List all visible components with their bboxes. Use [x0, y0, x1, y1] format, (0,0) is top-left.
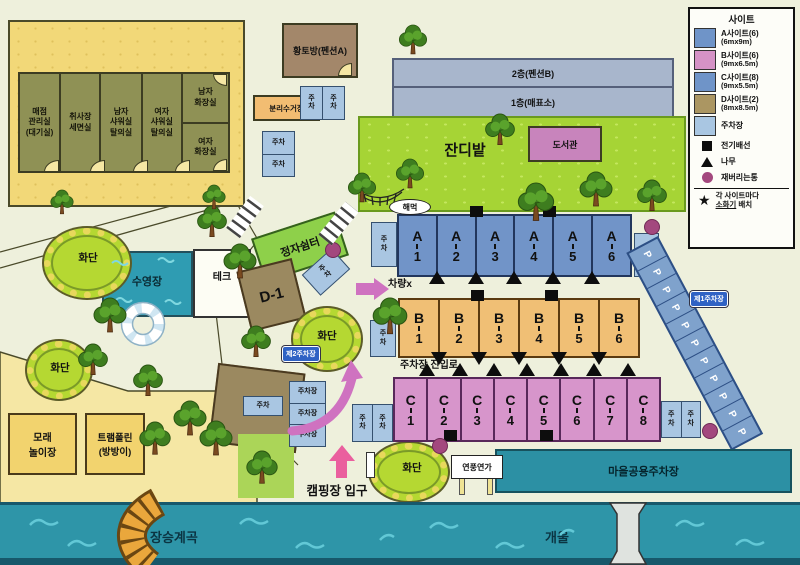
triangle-glyph — [701, 157, 713, 167]
parking-lot-cell: 주차장 — [290, 425, 325, 446]
room-men-shower: 남자 샤워실 탈의실 — [101, 74, 142, 171]
site-C-6: C6 — [561, 379, 594, 440]
site-number: 5 — [575, 332, 582, 345]
circle-glyph — [702, 172, 713, 183]
site-number: 7 — [607, 414, 614, 427]
legend-site-row: A사이트(6)(6mx9m) — [694, 28, 789, 48]
site-letter: B — [454, 311, 464, 325]
site-row-a: A1A2A3A4A5A6 — [397, 214, 632, 277]
river-bank — [0, 558, 800, 565]
site-number: 8 — [640, 414, 647, 427]
pension-b-building: 2층(펜션B) 1층(매표소) — [392, 58, 674, 120]
site-A-5: A5 — [554, 216, 593, 275]
power-marker-icon — [444, 430, 457, 441]
tree-marker-icon — [486, 363, 502, 376]
site-letter: C — [572, 393, 582, 407]
site-letter: A — [490, 229, 500, 243]
lawn-area — [358, 116, 686, 212]
power-marker-icon — [540, 430, 553, 441]
site-dash — [642, 408, 644, 413]
ash-bin-icon — [432, 438, 448, 454]
legend-note-text: 각 사이트마다 소화기 배치 — [716, 191, 759, 210]
site-dash — [543, 408, 545, 413]
tree-marker-icon — [506, 271, 522, 284]
site-number: 1 — [414, 250, 421, 263]
ash-bin-icon — [325, 242, 341, 258]
square-icon — [700, 141, 714, 151]
site-number: 3 — [495, 332, 502, 345]
parking-cell-pair: 주차 주차 — [262, 131, 295, 177]
legend-site-row: D사이트(2)(8mx8.5m) — [694, 94, 789, 114]
parking-cell-label: 주 차 — [323, 87, 344, 119]
legend-symbol-row: 나무 — [700, 154, 789, 169]
site-letter: C — [439, 393, 449, 407]
valley-label: 장승계곡 — [150, 527, 198, 546]
parking-cell-label: 주 차 — [682, 402, 701, 437]
pension-b-2f-label: 2층(펜션B) — [394, 60, 672, 88]
ash-bin-icon — [702, 423, 718, 439]
site-letter: C — [472, 393, 482, 407]
circle-icon — [700, 172, 714, 183]
parking-cell-label: 주 차 — [373, 405, 392, 441]
site-letter: C — [539, 393, 549, 407]
sand-playground: 모래 놀이장 — [8, 413, 77, 475]
site-row-c: C1C2C3C4C5C6C7C8 — [393, 377, 661, 442]
site-A-3: A3 — [477, 216, 516, 275]
site-letter: A — [529, 229, 539, 243]
site-number: 1 — [407, 414, 414, 427]
parking-cell-label: 주차 — [244, 397, 282, 415]
parking-tag: 제2주차장 — [282, 346, 320, 362]
legend-symbol-label: 재버리는통 — [721, 173, 758, 182]
site-letter: B — [574, 311, 584, 325]
site-number: 3 — [474, 414, 481, 427]
site-number: 4 — [507, 414, 514, 427]
site-C-4: C4 — [495, 379, 528, 440]
site-B-4: B4 — [520, 300, 560, 356]
campground-map: 매점 관리실 (대기실) 취사장 세면실 남자 샤워실 탈의실 여자 샤워실 탈… — [0, 0, 800, 565]
site-A-2: A2 — [438, 216, 477, 275]
site-letter: A — [451, 229, 461, 243]
room-women-shower: 여자 샤워실 탈의실 — [143, 74, 183, 171]
lawn-label: 잔디밭 — [420, 142, 510, 160]
tree-marker-icon — [584, 271, 600, 284]
sign-leg — [459, 478, 465, 495]
tree-marker-icon — [511, 352, 527, 365]
site-letter: C — [605, 393, 615, 407]
parking-cell-label: 주 차 — [372, 223, 396, 266]
site-letter: A — [606, 229, 616, 243]
site-number: 5 — [569, 250, 576, 263]
site-A-1: A1 — [399, 216, 438, 275]
site-dash — [476, 408, 478, 413]
site-number: 2 — [453, 250, 460, 263]
village-public-parking: 마을공용주차장 — [495, 449, 792, 493]
site-letter: A — [568, 229, 578, 243]
legend-site-row: 주차장 — [694, 116, 789, 136]
site-B-2: B2 — [440, 300, 480, 356]
site-C-7: C7 — [595, 379, 628, 440]
parking-cell-label: 주 차 — [662, 402, 682, 437]
site-color-swatch — [694, 116, 716, 136]
flowerbed-label: 화단 — [297, 330, 357, 343]
library: 도서관 — [528, 126, 602, 162]
parking-lot-cell: 주차장 — [290, 382, 325, 404]
pension-b-1f-label: 1층(매표소) — [394, 88, 672, 116]
site-dash — [509, 408, 511, 413]
site-B-5: B5 — [560, 300, 600, 356]
site-dash — [572, 244, 574, 249]
legend-site-size: (8mx8.5m) — [721, 104, 759, 113]
site-letter: C — [505, 393, 515, 407]
site-number: 4 — [530, 250, 537, 263]
site-letter: C — [638, 393, 648, 407]
legend-site-label: B사이트(6)(9mx6.5m) — [721, 51, 759, 69]
site-row-b: B1B2B3B4B5B6 — [398, 298, 640, 358]
room-kitchen: 취사장 세면실 — [61, 74, 101, 171]
site-color-swatch — [694, 28, 716, 48]
parking-cell: 주 차 — [371, 222, 397, 267]
star-icon: ★ — [698, 193, 711, 207]
flowerbed-label: 화단 — [30, 362, 90, 375]
legend-symbol-list: 전기배선나무재버리는통 — [694, 138, 789, 185]
legend-site-label: C사이트(8)(9mx5.5m) — [721, 73, 759, 91]
parking-cell: 주차 — [243, 396, 283, 416]
site-dash — [494, 244, 496, 249]
legend-panel: 사이트 A사이트(6)(6mx9m)B사이트(6)(9mx6.5m)C사이트(8… — [688, 7, 795, 249]
parking-cell-label: 주차 — [263, 132, 294, 155]
site-letter: B — [414, 311, 424, 325]
room-store: 매점 관리실 (대기실) — [20, 74, 61, 171]
legend-site-name: 주차장 — [721, 121, 743, 130]
site-B-1: B1 — [400, 300, 440, 356]
site-dash — [455, 244, 457, 249]
site-letter: B — [614, 311, 624, 325]
site-number: 6 — [608, 250, 615, 263]
legend-site-row: B사이트(6)(9mx6.5m) — [694, 50, 789, 70]
entrance-arrow-icon — [329, 445, 355, 478]
signpost — [366, 452, 375, 478]
power-marker-icon — [545, 290, 558, 301]
site-A-6: A6 — [593, 216, 630, 275]
site-color-swatch — [694, 94, 716, 114]
note-underline: 소화기 — [716, 200, 737, 209]
ash-bin-icon — [644, 219, 660, 235]
deck-label: 테크 — [197, 272, 247, 284]
site-letter: C — [406, 393, 416, 407]
sign-leg — [487, 478, 493, 495]
tree-marker-icon — [545, 271, 561, 284]
legend-site-size: (6mx9m) — [721, 38, 759, 47]
parking-cell-pair: 주 차 주 차 — [661, 401, 701, 438]
site-dash — [533, 244, 535, 249]
parking-cell-label: 주 차 — [301, 87, 323, 119]
power-marker-icon — [470, 206, 483, 217]
site-C-1: C1 — [395, 379, 428, 440]
river: 장승계곡 개울 — [0, 502, 800, 565]
site-letter: A — [412, 229, 422, 243]
site-number: 2 — [455, 332, 462, 345]
tree-marker-icon — [551, 352, 567, 365]
site-letter: B — [494, 311, 504, 325]
parking-cell-label: 주 차 — [371, 321, 395, 356]
site-letter: B — [534, 311, 544, 325]
green-patch — [238, 434, 294, 498]
legend-site-size: (9mx6.5m) — [721, 60, 759, 69]
site-number: 2 — [440, 414, 447, 427]
legend-symbol-label: 전기배선 — [721, 141, 750, 150]
legend-site-row: C사이트(8)(9mx5.5m) — [694, 72, 789, 92]
site-A-4: A4 — [515, 216, 554, 275]
legend-site-label: D사이트(2)(8mx8.5m) — [721, 95, 759, 113]
site-dash — [609, 408, 611, 413]
trampoline: 트램폴린 (방방이) — [85, 413, 145, 475]
legend-symbol-row: 재버리는통 — [700, 170, 789, 185]
triangle-icon — [700, 157, 714, 167]
tree-icon — [198, 206, 227, 237]
legend-note: ★ 각 사이트마다 소화기 배치 — [694, 191, 789, 210]
entry-road-label: 주차장 진입로 — [400, 360, 480, 372]
site-number: 5 — [540, 414, 547, 427]
site-C-3: C3 — [462, 379, 495, 440]
site-C-8: C8 — [628, 379, 659, 440]
pool-label: 수영장 — [112, 276, 182, 289]
site-number: 6 — [573, 414, 580, 427]
service-building: 매점 관리실 (대기실) 취사장 세면실 남자 샤워실 탈의실 여자 샤워실 탈… — [18, 72, 230, 173]
site-dash — [611, 244, 613, 249]
site-number: 4 — [535, 332, 542, 345]
power-marker-icon — [543, 206, 556, 217]
power-marker-icon — [471, 290, 484, 301]
parking-lot-cell: 주차장 — [290, 404, 325, 426]
site-dash — [416, 244, 418, 249]
tree-icon — [399, 25, 426, 54]
tree-marker-icon — [591, 352, 607, 365]
pension-sign: 연풍연가 — [451, 455, 503, 479]
legend-site-label: 주차장 — [721, 121, 743, 130]
site-dash — [410, 408, 412, 413]
camp-entrance-label: 캠핑장 입구 — [297, 484, 377, 499]
no-car-arrow-icon — [356, 278, 389, 300]
stream-label: 개울 — [545, 527, 569, 546]
tree-marker-icon — [468, 271, 484, 284]
legend-symbol-row: 전기배선 — [700, 138, 789, 153]
hammock-label: 해먹 — [389, 199, 431, 215]
parking-cell-label: 주차 — [263, 155, 294, 177]
site-B-6: B6 — [600, 300, 638, 356]
legend-site-list: A사이트(6)(6mx9m)B사이트(6)(9mx6.5m)C사이트(8)(9m… — [694, 28, 789, 136]
parking-tag: 제1주차장 — [690, 291, 728, 307]
tree-icon — [174, 401, 206, 435]
note-rest: 배치 — [736, 200, 752, 209]
square-glyph — [702, 141, 712, 151]
site-number: 1 — [415, 332, 422, 345]
legend-symbol-label: 나무 — [721, 157, 736, 166]
site-color-swatch — [694, 72, 716, 92]
site-number: 6 — [615, 332, 622, 345]
site-dash — [443, 408, 445, 413]
legend-site-size: (9mx5.5m) — [721, 82, 759, 91]
tree-marker-icon — [620, 363, 636, 376]
legend-site-label: A사이트(6)(6mx9m) — [721, 29, 759, 47]
flowerbed-label: 화단 — [382, 462, 442, 475]
site-color-swatch — [694, 50, 716, 70]
note-line1: 각 사이트마다 — [716, 191, 759, 200]
site-B-3: B3 — [480, 300, 520, 356]
parking-cell-label: 주 차 — [353, 405, 373, 441]
legend-title: 사이트 — [694, 12, 789, 26]
no-car-label: 차량x — [388, 279, 434, 291]
flowerbed-label: 화단 — [58, 252, 118, 265]
parking-cell: 주 차 — [370, 320, 396, 357]
parking-cell-pair: 주 차 주 차 — [352, 404, 393, 442]
site-dash — [576, 408, 578, 413]
parking-cell-pair: 주 차 주 차 — [300, 86, 345, 120]
legend-divider — [694, 188, 789, 189]
parking-lot-stack: 주차장주차장주차장 — [289, 381, 326, 447]
tree-icon — [134, 365, 163, 396]
site-number: 3 — [491, 250, 498, 263]
